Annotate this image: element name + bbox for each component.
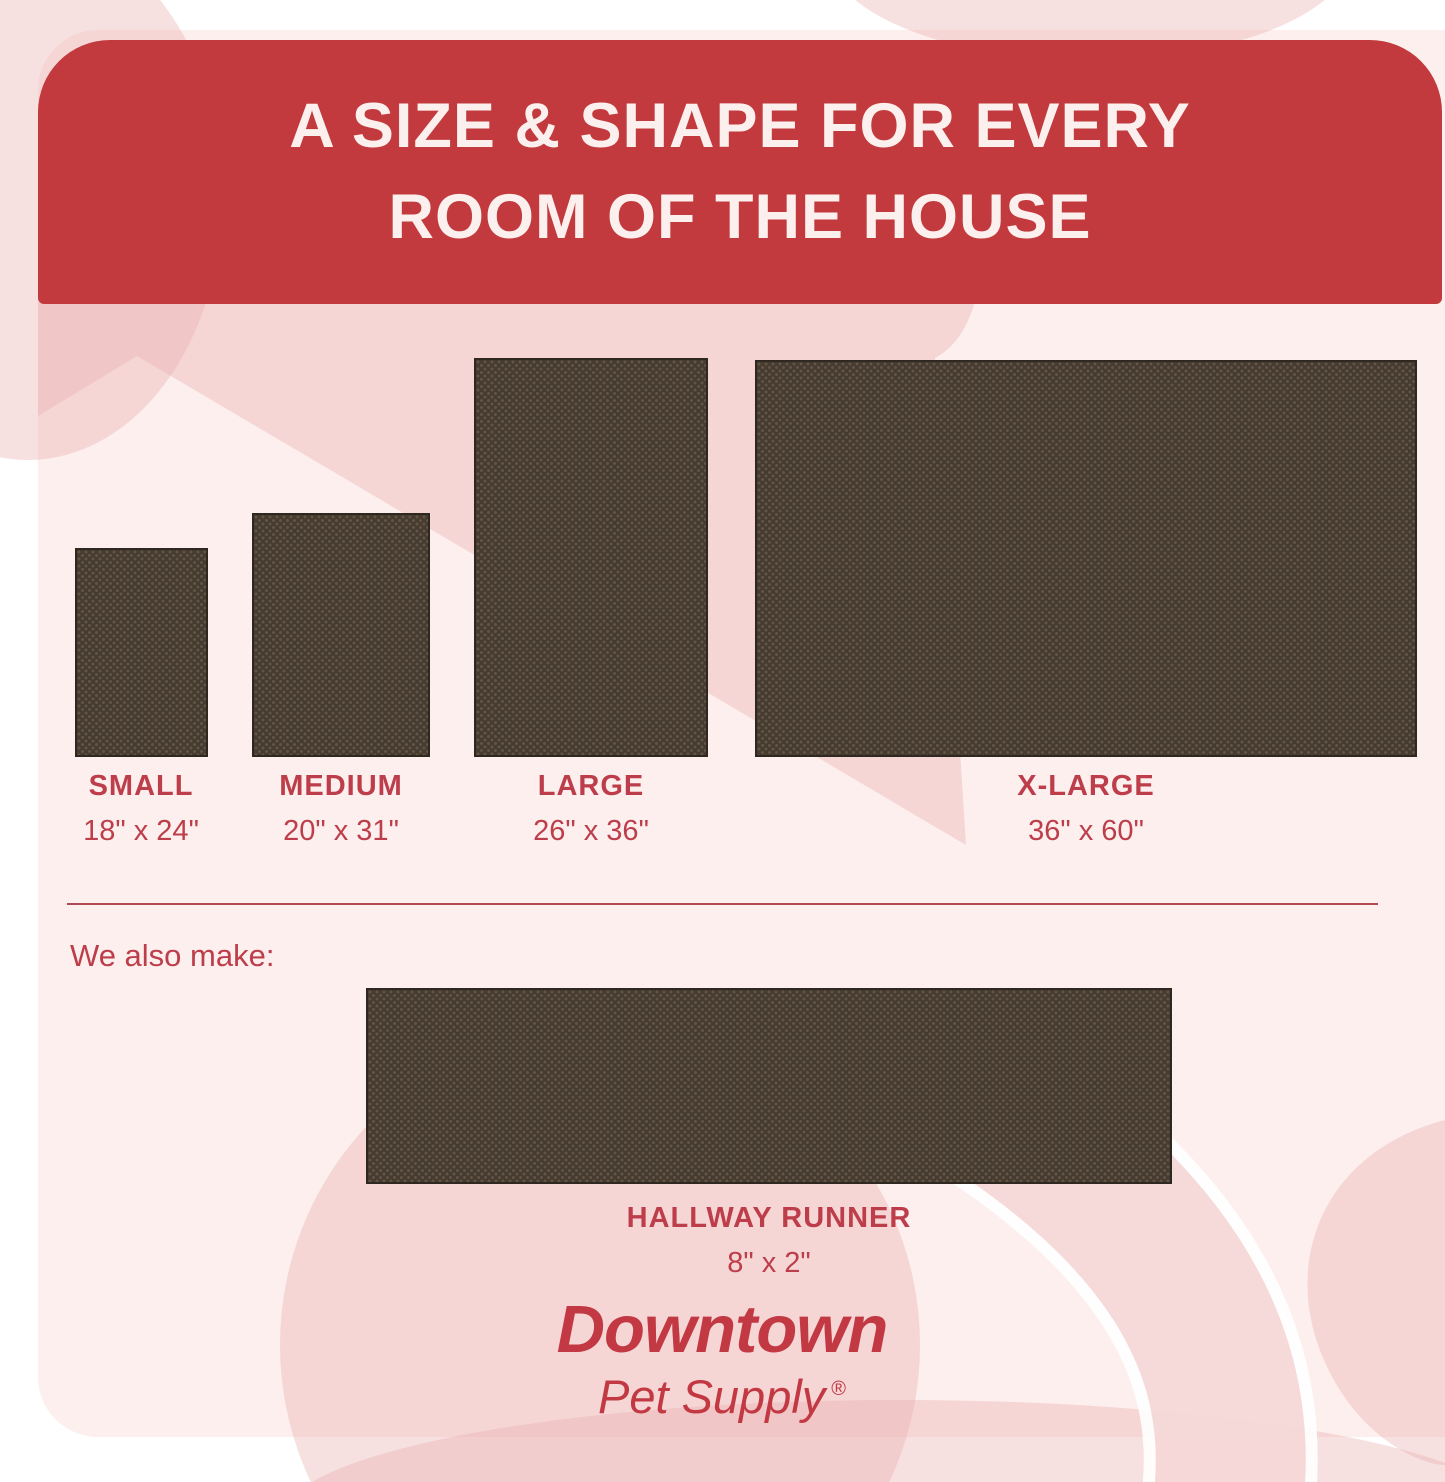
also-make-text: We also make: — [70, 938, 274, 974]
size-name: LARGE — [441, 770, 741, 803]
size-label-hallway-runner: HALLWAY RUNNER 8" x 2" — [619, 1202, 919, 1280]
mat-swatch-large — [474, 358, 708, 757]
header-title-line1: A SIZE & SHAPE FOR EVERY — [289, 81, 1190, 172]
infographic-canvas: A SIZE & SHAPE FOR EVERY ROOM OF THE HOU… — [0, 0, 1445, 1482]
size-dimensions: 8" x 2" — [619, 1247, 919, 1280]
mat-swatch-xlarge — [755, 360, 1417, 757]
brand-tagline: Pet Supply® — [422, 1369, 1022, 1424]
brand-name: Downtown — [422, 1296, 1022, 1363]
brand-tagline-text: Pet Supply — [598, 1370, 825, 1423]
size-dimensions: 26" x 36" — [441, 815, 741, 848]
header-banner: A SIZE & SHAPE FOR EVERY ROOM OF THE HOU… — [38, 40, 1442, 304]
size-label-xlarge: X-LARGE 36" x 60" — [936, 770, 1236, 848]
header-title-line2: ROOM OF THE HOUSE — [388, 172, 1091, 263]
mat-swatch-hallway-runner — [366, 988, 1172, 1184]
registered-trademark-symbol: ® — [831, 1378, 846, 1400]
size-name: X-LARGE — [936, 770, 1236, 803]
brand-logo: Downtown Pet Supply® — [422, 1296, 1022, 1424]
size-name: HALLWAY RUNNER — [619, 1202, 919, 1235]
size-label-large: LARGE 26" x 36" — [441, 770, 741, 848]
section-divider — [67, 903, 1378, 905]
size-dimensions: 36" x 60" — [936, 815, 1236, 848]
mat-swatch-small — [75, 548, 208, 757]
mat-swatch-medium — [252, 513, 430, 757]
